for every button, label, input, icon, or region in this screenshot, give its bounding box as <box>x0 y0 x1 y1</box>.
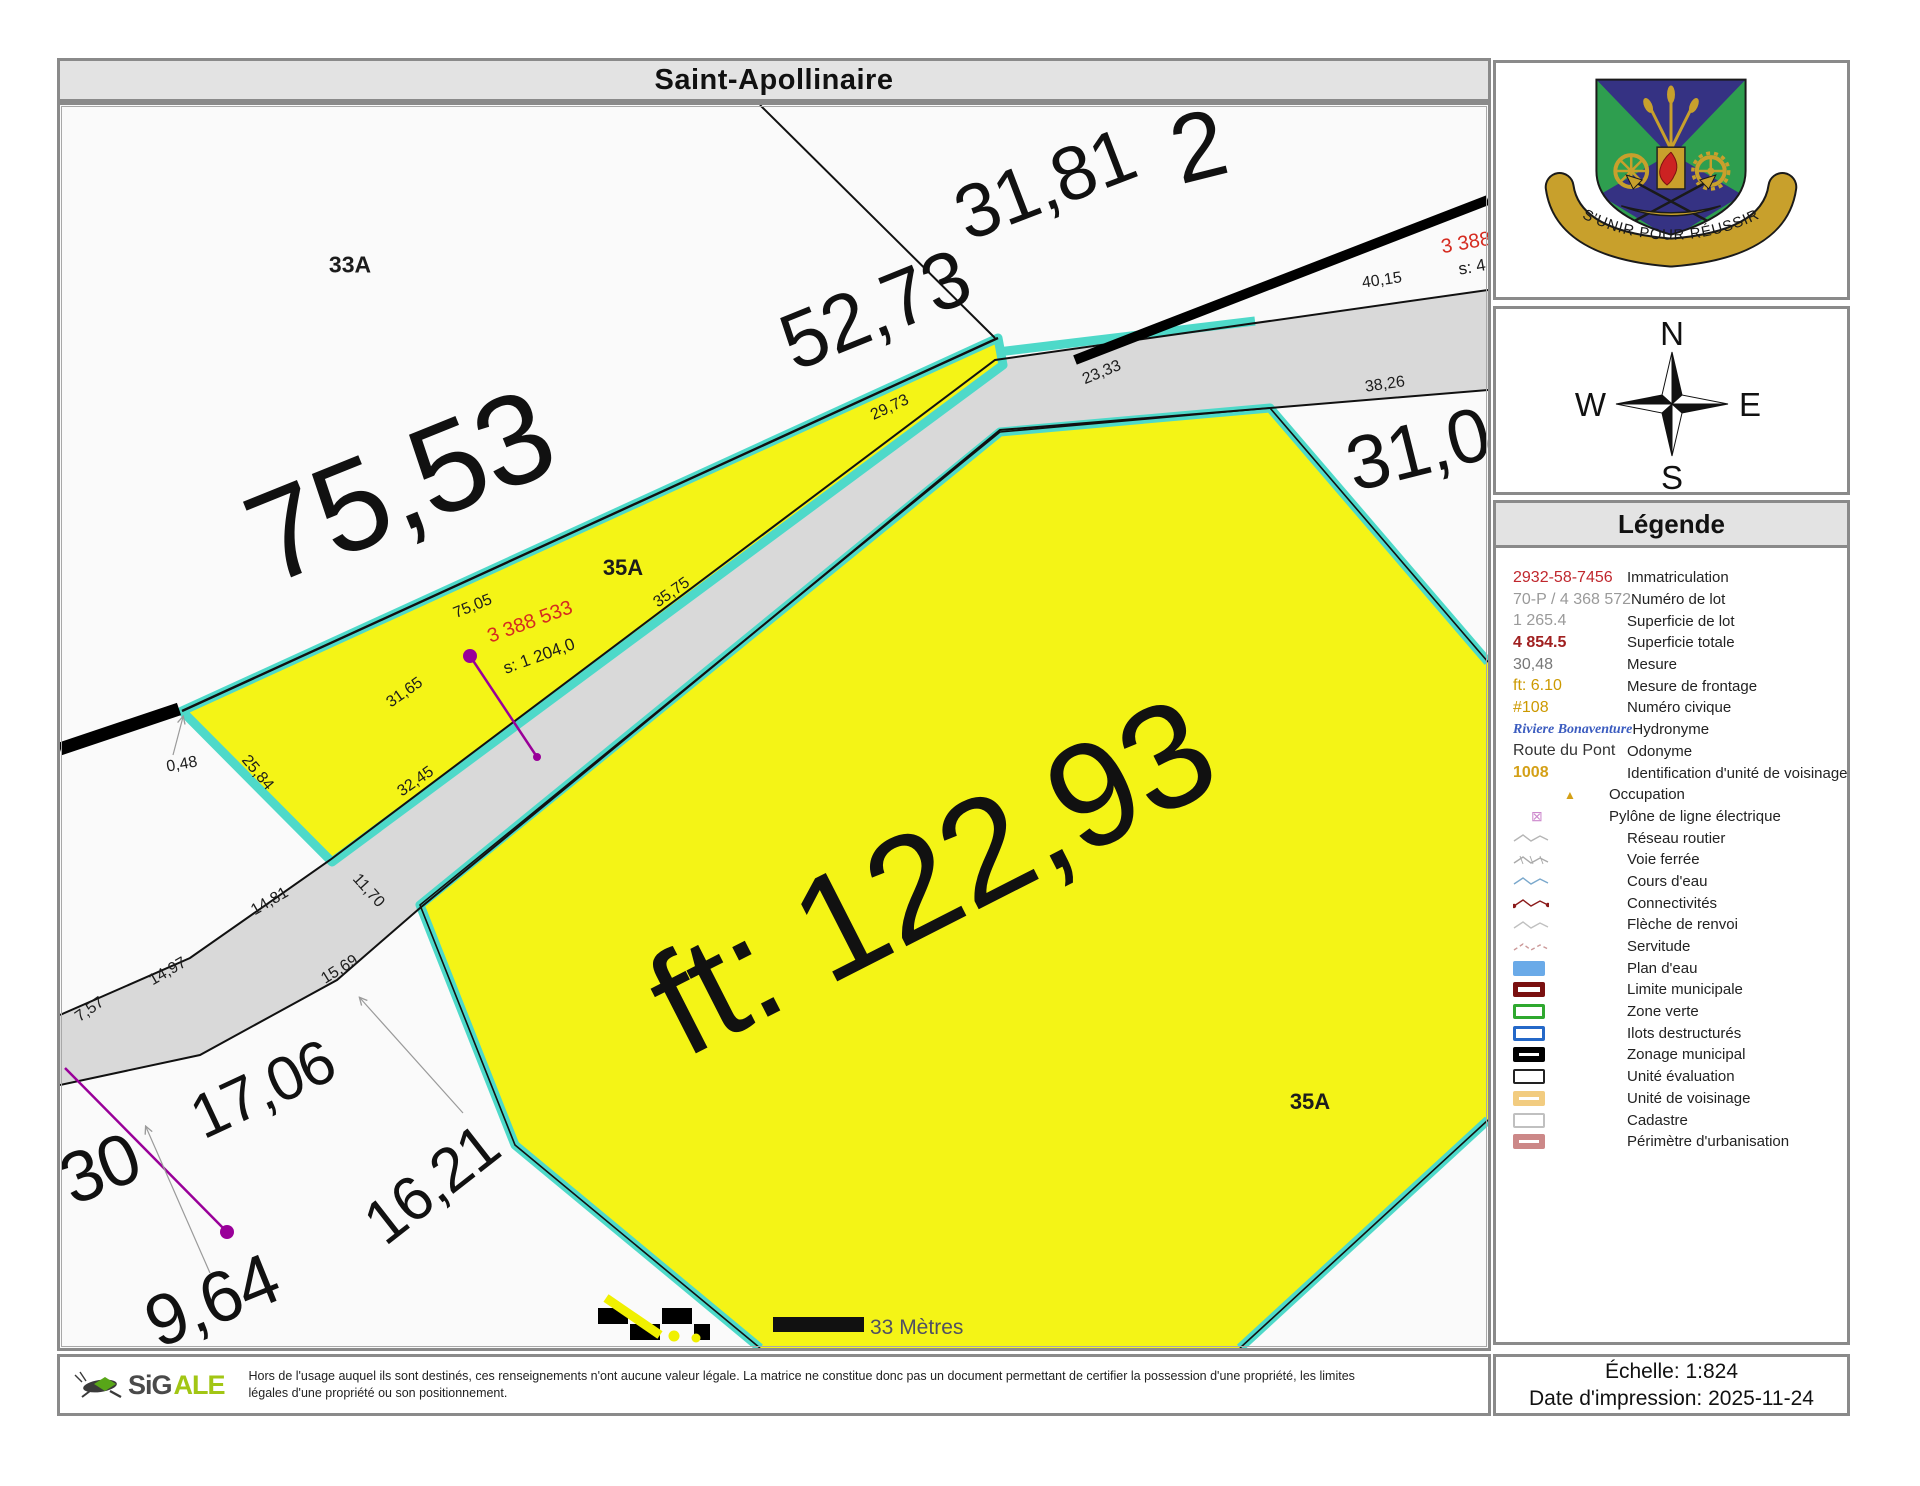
legend-item-label: Périmètre d'urbanisation <box>1627 1133 1789 1150</box>
legend-symbol-triangle: ▲ <box>1513 789 1609 801</box>
map-measurement-label: 23,33 <box>1080 358 1123 388</box>
legend-item-label: Superficie de lot <box>1627 613 1735 630</box>
map-measurement-label: 35,75 <box>651 575 693 611</box>
map-measurement-label: 16,21 <box>354 1114 510 1255</box>
coat-of-arms-icon: S'UNIR POUR RÉUSSIR <box>1496 61 1847 299</box>
legend-symbol-text-bold: 1008 <box>1513 765 1627 781</box>
legend-item: ▲Occupation <box>1496 784 1847 806</box>
legend-item: 70-P / 4 368 572Numéro de lot <box>1496 589 1847 611</box>
legend-item: Ilots destructurés <box>1496 1022 1847 1044</box>
map-measurement-label: 31,65 <box>384 675 426 711</box>
legend-item-label: Mesure <box>1627 656 1677 673</box>
legend-symbol-zigzag-dots <box>1513 896 1627 910</box>
legend-item: Cadastre <box>1496 1109 1847 1131</box>
legend-symbol-rect <box>1513 1069 1627 1084</box>
compass-north-label: N <box>1660 315 1684 352</box>
legend-item-label: Numéro de lot <box>1631 591 1725 608</box>
legend-item-label: Unité de voisinage <box>1627 1090 1750 1107</box>
map-measurement-label: 25,84 <box>238 753 276 794</box>
legend-header: Légende <box>1493 500 1850 548</box>
compass-east-label: E <box>1739 386 1761 423</box>
legend-symbol-rect <box>1513 1134 1627 1149</box>
print-date-text: Date d'impression: 2025-11-24 <box>1529 1387 1814 1411</box>
legend-item: 2932-58-7456Immatriculation <box>1496 567 1847 589</box>
legend-symbol-pylon: ⊠ <box>1513 809 1609 823</box>
legend-item-label: Réseau routier <box>1627 830 1725 847</box>
legend-items-list: 2932-58-7456Immatriculation70-P / 4 368 … <box>1496 553 1847 1153</box>
map-measurement-label: 14,81 <box>249 885 292 919</box>
map-measurement-label: ft: 122,93 <box>628 673 1236 1081</box>
map-measurement-label: 75,05 <box>451 592 494 622</box>
map-measurement-label: 9,64 <box>135 1242 288 1351</box>
legend-symbol-text: 1 265.4 <box>1513 613 1627 629</box>
legend-item: Réseau routier <box>1496 827 1847 849</box>
municipal-crest-box: S'UNIR POUR RÉUSSIR <box>1493 60 1850 300</box>
legend-symbol-text: 70-P / 4 368 572 <box>1513 592 1631 608</box>
legend-item: 4 854.5Superficie totale <box>1496 632 1847 654</box>
map-measurement-label: 35A <box>1290 1091 1330 1113</box>
legend-symbol-rect <box>1513 1004 1627 1019</box>
legend-item-label: Hydronyme <box>1632 721 1709 738</box>
legend-symbol-zigzag <box>1513 918 1627 932</box>
legend-item: Cours d'eau <box>1496 871 1847 893</box>
map-measurement-label: 31,0 <box>1339 396 1491 505</box>
sigale-logo: SiGALE <box>74 1370 225 1401</box>
legend-item-label: Odonyme <box>1627 743 1692 760</box>
legend-item-label: Servitude <box>1627 938 1690 955</box>
legend-symbol-text-italic: Riviere Bonaventure <box>1513 723 1632 737</box>
legend-item-label: Numéro civique <box>1627 699 1731 716</box>
compass-box: N E S W <box>1493 306 1850 495</box>
legal-disclaimer: Hors de l'usage auquel ils sont destinés… <box>241 1368 1355 1402</box>
map-measurement-label: 3 388 <box>1440 229 1491 257</box>
legend-item: Flèche de renvoi <box>1496 914 1847 936</box>
map-measurement-label: 75,53 <box>230 369 570 606</box>
legend-symbol-rect <box>1513 982 1627 997</box>
legend-item-label: Ilots destructurés <box>1627 1025 1741 1042</box>
legend-item-label: Immatriculation <box>1627 569 1729 586</box>
legend-symbol-zigzag <box>1513 831 1627 845</box>
legend-item: Voie ferrée <box>1496 849 1847 871</box>
legend-item-label: Occupation <box>1609 786 1685 803</box>
legend-item: #108Numéro civique <box>1496 697 1847 719</box>
page-title: Saint-Apollinaire <box>655 64 894 97</box>
disclaimer-line-2: légales d'une propriété ou son positionn… <box>249 1385 1355 1402</box>
legend-box: Légende 2932-58-7456Immatriculation70-P … <box>1493 500 1850 1345</box>
legend-item: Plan d'eau <box>1496 957 1847 979</box>
legend-item: Route du PontOdonyme <box>1496 741 1847 763</box>
map-measurement-label: 2 <box>1161 102 1235 200</box>
logo-text-dark: SiG <box>128 1370 172 1401</box>
legend-item: Servitude <box>1496 936 1847 958</box>
map-measurement-label: 30 <box>57 1121 150 1217</box>
legend-item: ⊠Pylône de ligne électrique <box>1496 806 1847 828</box>
legend-item-label: Superficie totale <box>1627 634 1735 651</box>
legend-item-label: Cadastre <box>1627 1112 1688 1129</box>
legend-item: Zone verte <box>1496 1001 1847 1023</box>
legend-item-label: Zone verte <box>1627 1003 1699 1020</box>
legend-item: 30,48Mesure <box>1496 654 1847 676</box>
map-measurement-label: 52,73 <box>770 236 981 383</box>
legend-symbol-text: #108 <box>1513 700 1627 716</box>
scale-info-box: Échelle: 1:824 Date d'impression: 2025-1… <box>1493 1354 1850 1416</box>
legend-item: Riviere BonaventureHydronyme <box>1496 719 1847 741</box>
map-measurement-label: s: 4 <box>1457 256 1487 278</box>
compass-south-label: S <box>1661 459 1683 492</box>
legend-symbol-zigzag-ticks <box>1513 853 1627 867</box>
legend-item-label: Limite municipale <box>1627 981 1743 998</box>
legend-symbol-text-bold: 4 854.5 <box>1513 635 1627 651</box>
legend-item: Limite municipale <box>1496 979 1847 1001</box>
legend-item: 1008Identification d'unité de voisinage <box>1496 762 1847 784</box>
legend-item: Unité évaluation <box>1496 1066 1847 1088</box>
legend-item: Unité de voisinage <box>1496 1088 1847 1110</box>
disclaimer-line-1: Hors de l'usage auquel ils sont destinés… <box>249 1368 1355 1385</box>
map-viewport: 75,5352,7331,81231,0ft: 122,9317,0616,21… <box>57 102 1491 1351</box>
legend-symbol-rect <box>1513 1026 1627 1041</box>
legend-symbol-text: ft: 6.10 <box>1513 678 1627 694</box>
legend-item-label: Pylône de ligne électrique <box>1609 808 1781 825</box>
map-measurement-label: 33A <box>329 254 371 277</box>
map-measurement-label: s: 1 204,0 <box>501 635 577 677</box>
map-measurement-label: 15,69 <box>319 953 361 988</box>
compass-rose-icon: N E S W <box>1496 309 1847 492</box>
legend-item-label: Flèche de renvoi <box>1627 916 1738 933</box>
legend-symbol-zigzag-dash <box>1513 940 1627 954</box>
legend-item-label: Mesure de frontage <box>1627 678 1757 695</box>
logo-text-green: ALE <box>174 1370 225 1401</box>
compass-west-label: W <box>1575 386 1607 423</box>
legend-item-label: Zonage municipal <box>1627 1046 1745 1063</box>
map-scale-text: Échelle: 1:824 <box>1605 1360 1738 1384</box>
map-measurement-label: 38,26 <box>1364 374 1406 395</box>
map-labels-layer: 75,5352,7331,81231,0ft: 122,9317,0616,21… <box>60 105 1488 1348</box>
legend-item: ft: 6.10Mesure de frontage <box>1496 675 1847 697</box>
legend-symbol-rect <box>1513 1091 1627 1106</box>
legend-item-label: Voie ferrée <box>1627 851 1700 868</box>
map-measurement-label: 32,45 <box>395 764 437 800</box>
map-measurement-label: 14,97 <box>147 955 190 989</box>
map-title-bar: Saint-Apollinaire <box>57 58 1491 102</box>
map-measurement-label: 17,06 <box>182 1030 344 1150</box>
legend-symbol-zigzag <box>1513 874 1627 888</box>
legend-item-label: Connectivités <box>1627 895 1717 912</box>
map-measurement-label: 35A <box>603 557 643 579</box>
legend-item-label: Plan d'eau <box>1627 960 1697 977</box>
legend-symbol-text: 30,48 <box>1513 657 1627 673</box>
map-measurement-label: 40,15 <box>1361 270 1403 291</box>
map-measurement-label: 29,73 <box>868 392 911 423</box>
map-measurement-label: 7,57 <box>73 995 108 1026</box>
legend-item: Connectivités <box>1496 892 1847 914</box>
legend-title: Légende <box>1618 509 1725 540</box>
legend-item: Zonage municipal <box>1496 1044 1847 1066</box>
map-measurement-label: 11,70 <box>349 871 387 911</box>
legend-symbol-text: Route du Pont <box>1513 743 1627 759</box>
legend-symbol-rect-fill <box>1513 961 1627 976</box>
grasshopper-icon <box>74 1370 126 1400</box>
footer-bar: SiGALE Hors de l'usage auquel ils sont d… <box>57 1354 1491 1416</box>
map-measurement-label: 0,48 <box>165 754 198 775</box>
map-canvas: 75,5352,7331,81231,0ft: 122,9317,0616,21… <box>60 105 1488 1348</box>
legend-item: 1 265.4Superficie de lot <box>1496 610 1847 632</box>
legend-item-label: Identification d'unité de voisinage <box>1627 765 1848 782</box>
legend-symbol-rect <box>1513 1113 1627 1128</box>
legend-symbol-text: 2932-58-7456 <box>1513 570 1627 586</box>
legend-item-label: Cours d'eau <box>1627 873 1707 890</box>
scale-bar-label: 33 Mètres <box>870 1316 963 1340</box>
legend-item-label: Unité évaluation <box>1627 1068 1735 1085</box>
map-measurement-label: 31,81 <box>945 116 1145 253</box>
legend-item: Périmètre d'urbanisation <box>1496 1131 1847 1153</box>
legend-symbol-rect <box>1513 1047 1627 1062</box>
